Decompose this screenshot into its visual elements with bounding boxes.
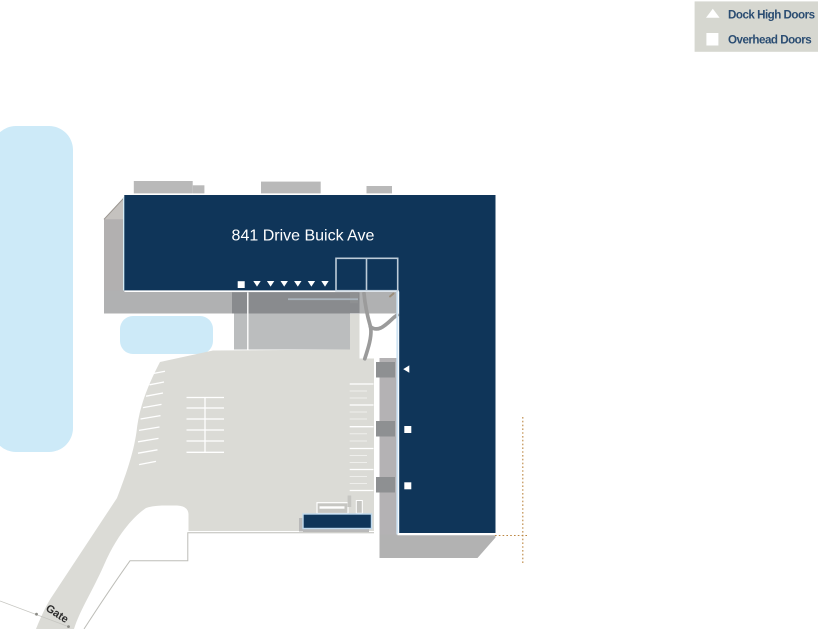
svg-text:841 Drive Buick Ave: 841 Drive Buick Ave [232, 228, 375, 245]
svg-text:Overhead Doors: Overhead Doors [728, 34, 811, 47]
svg-text:Dock High Doors: Dock High Doors [728, 8, 815, 21]
